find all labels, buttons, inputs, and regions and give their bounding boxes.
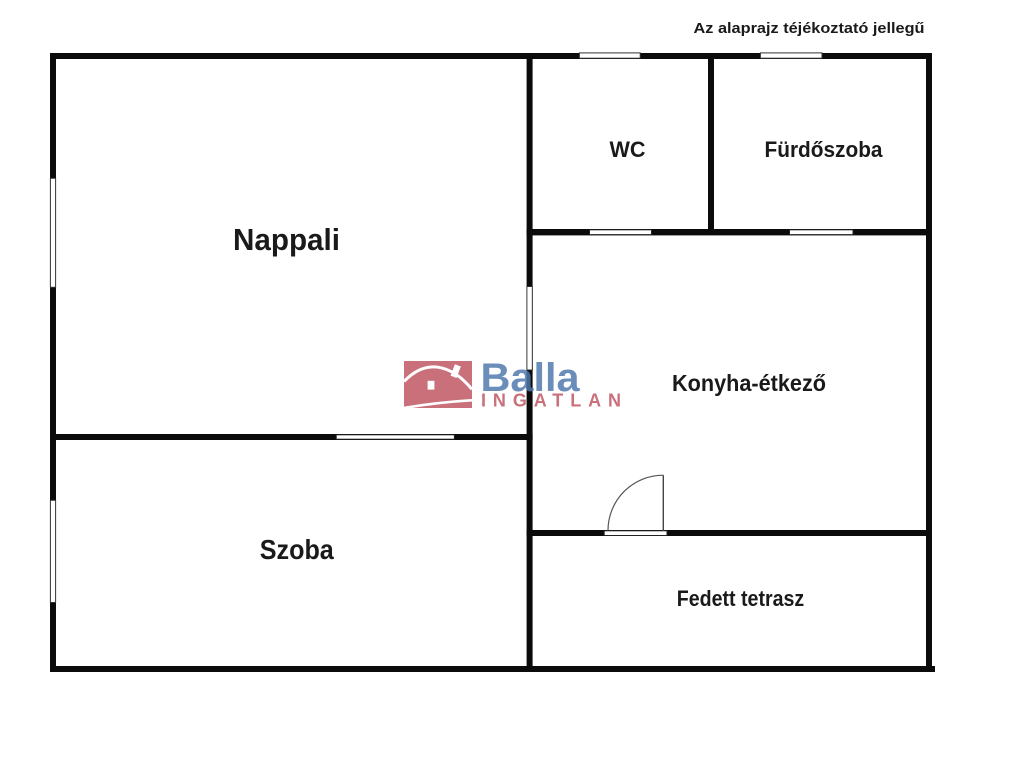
- svg-text:Nappali: Nappali: [233, 222, 340, 257]
- svg-text:Az alaprajz téjékoztató jelleg: Az alaprajz téjékoztató jellegű: [694, 20, 925, 37]
- svg-text:Fedett tetrasz: Fedett tetrasz: [677, 586, 805, 611]
- svg-text:Konyha-étkező: Konyha-étkező: [672, 370, 826, 396]
- svg-text:Fürdőszoba: Fürdőszoba: [765, 137, 884, 162]
- svg-text:WC: WC: [610, 137, 646, 162]
- svg-text:Szoba: Szoba: [260, 534, 334, 565]
